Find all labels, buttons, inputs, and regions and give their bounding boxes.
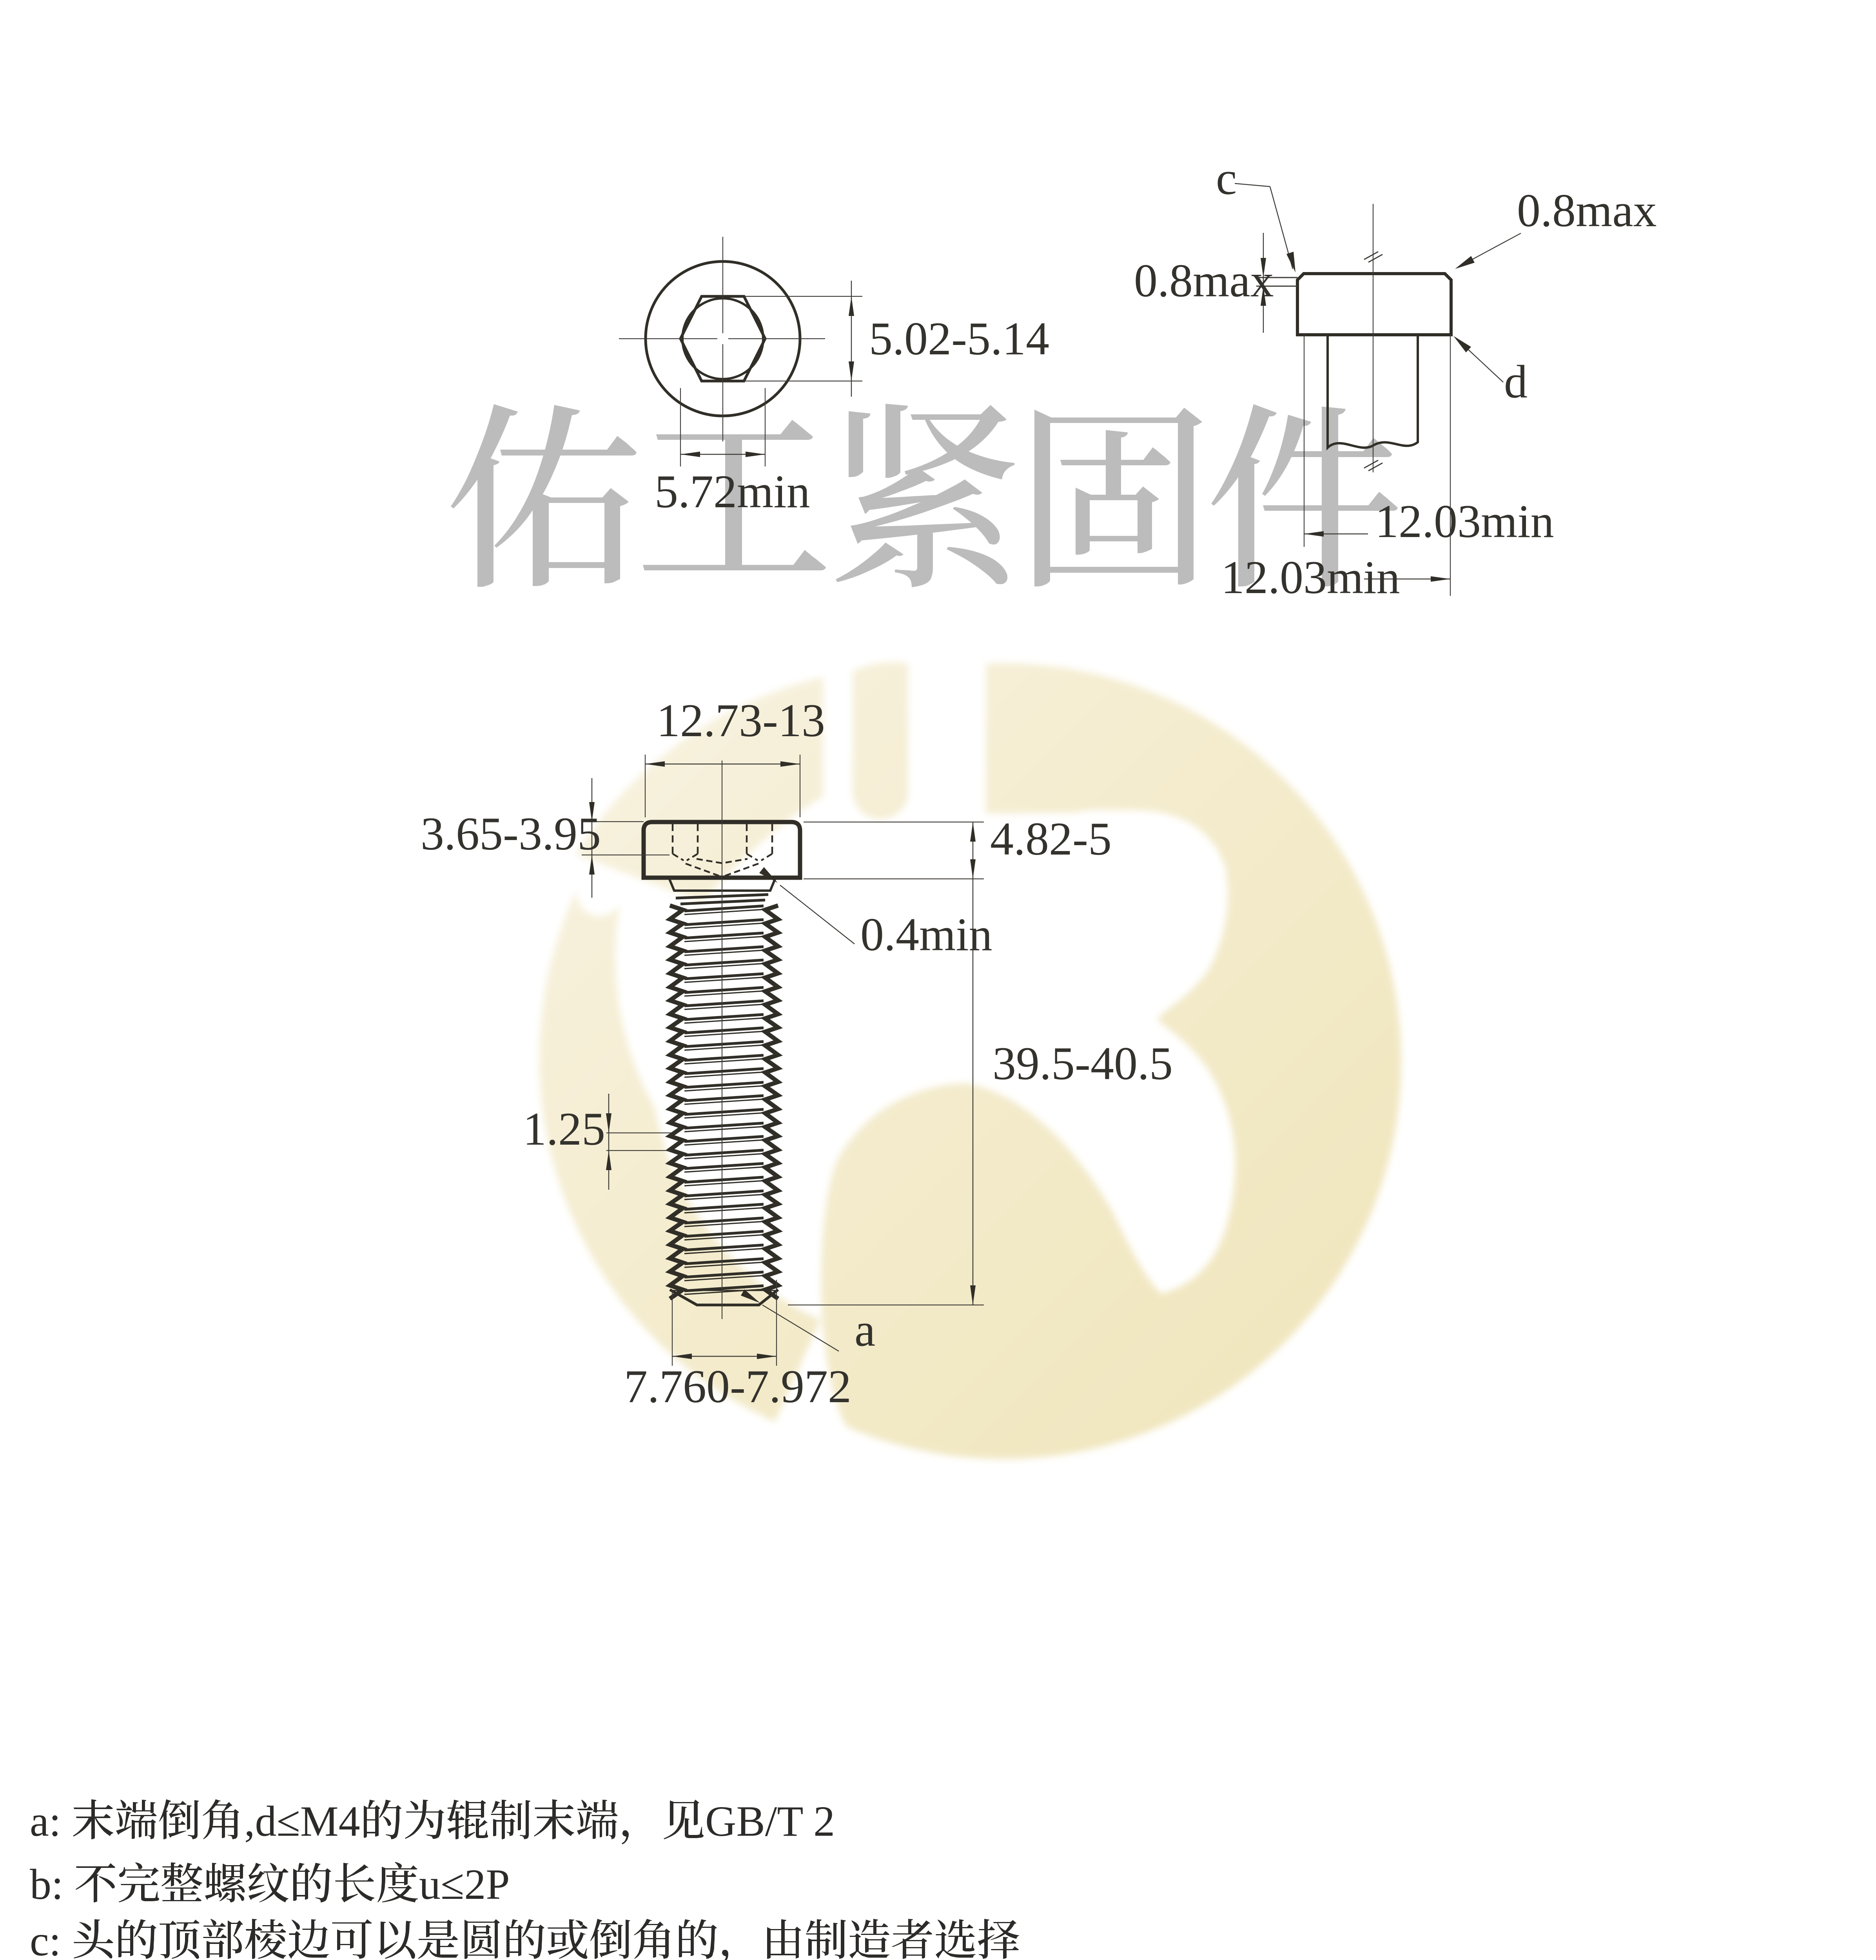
svg-text:c: c	[1216, 152, 1237, 204]
svg-text:c:: c:	[30, 1917, 72, 1960]
svg-text:7.760-7.972: 7.760-7.972	[624, 1360, 851, 1412]
svg-text:0.4min: 0.4min	[860, 908, 992, 960]
svg-text:0.8max: 0.8max	[1517, 184, 1657, 236]
svg-text:5.02-5.14: 5.02-5.14	[869, 312, 1049, 365]
svg-text:GB/T 2: GB/T 2	[705, 1797, 835, 1845]
svg-text:,d≤M4: ,d≤M4	[244, 1797, 360, 1845]
svg-text:12.73-13: 12.73-13	[657, 694, 825, 746]
svg-text:d: d	[1504, 356, 1528, 408]
svg-text:5.72min: 5.72min	[655, 465, 810, 517]
svg-text:12.03min: 12.03min	[1375, 495, 1554, 547]
svg-text:39.5-40.5: 39.5-40.5	[992, 1037, 1173, 1089]
svg-text:12.03min: 12.03min	[1221, 551, 1400, 603]
svg-text:3.65-3.95: 3.65-3.95	[421, 808, 601, 860]
svg-text:1.25: 1.25	[523, 1103, 605, 1155]
svg-text:4.82-5: 4.82-5	[990, 813, 1112, 865]
svg-text:0.8max: 0.8max	[1134, 254, 1274, 307]
svg-text:u≤2P: u≤2P	[419, 1860, 510, 1908]
svg-text:a: a	[855, 1304, 875, 1356]
svg-text:b:: b:	[30, 1860, 74, 1908]
svg-text:a:: a:	[30, 1797, 72, 1845]
